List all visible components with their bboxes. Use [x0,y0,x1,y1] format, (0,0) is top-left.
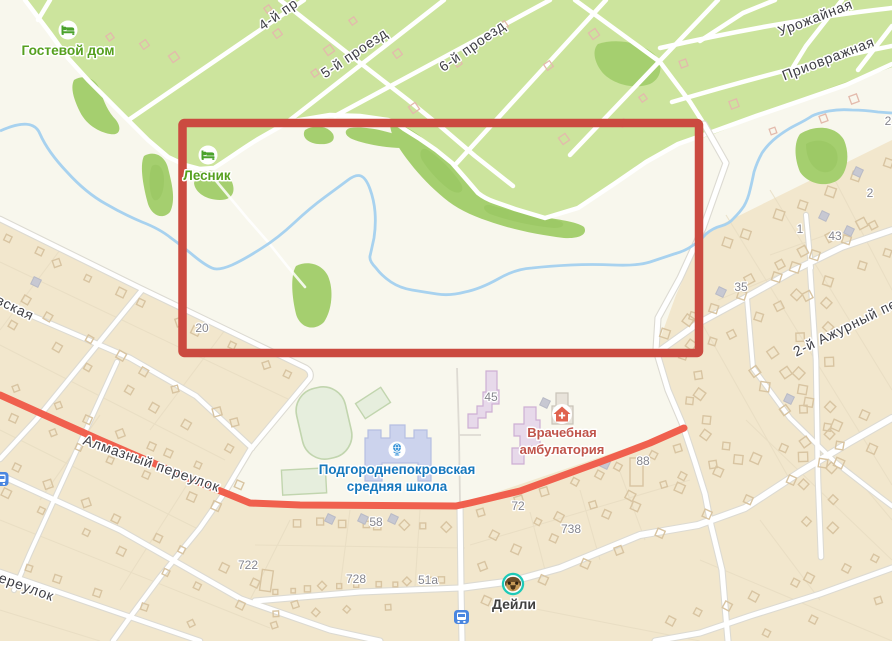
svg-text:72: 72 [511,499,525,513]
svg-text:амбулатория: амбулатория [520,442,605,457]
svg-text:Подгороднепокровская: Подгороднепокровская [319,462,476,477]
svg-text:средняя школа: средняя школа [347,479,448,494]
svg-text:2: 2 [885,114,892,128]
svg-text:722: 722 [238,558,258,572]
svg-text:2: 2 [867,186,874,200]
svg-text:35: 35 [734,280,748,294]
svg-text:45: 45 [484,390,498,404]
svg-text:51а: 51а [418,573,438,587]
svg-text:43: 43 [828,229,842,243]
svg-text:Гостевой дом: Гостевой дом [22,43,115,58]
svg-text:728: 728 [346,572,366,586]
svg-text:Лесник: Лесник [183,168,230,183]
svg-text:738: 738 [561,522,581,536]
svg-text:58: 58 [369,515,383,529]
svg-text:20: 20 [195,321,209,335]
svg-text:Врачебная: Врачебная [527,425,597,440]
svg-text:1: 1 [797,222,804,236]
svg-text:88: 88 [636,454,650,468]
svg-text:Дейли: Дейли [492,596,536,612]
